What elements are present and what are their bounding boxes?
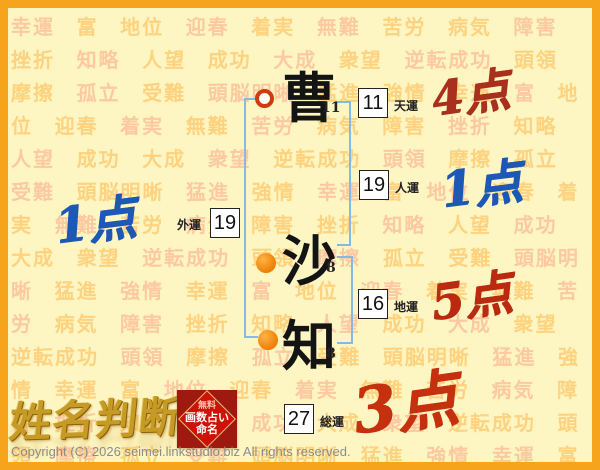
tenun-score: 4点 bbox=[427, 53, 513, 129]
stroke-count-2: 8 bbox=[326, 260, 336, 276]
free-naming-stamp: 無料 画数占い 命名 bbox=[177, 390, 237, 448]
copyright-text: Copyright (C) 2026 seimei.linkstudio.biz… bbox=[11, 444, 351, 459]
stroke-count-1: 11 bbox=[321, 100, 340, 116]
jinun-value-box: 19 bbox=[359, 170, 389, 200]
gaiun-value-box: 19 bbox=[210, 208, 240, 238]
jinun-label: 人運 bbox=[395, 179, 419, 196]
jinun-score: 1点 bbox=[436, 141, 525, 220]
chiun-score: 5点 bbox=[426, 253, 516, 334]
name-char-2: 沙 bbox=[270, 233, 348, 289]
name-char-1: 曹 bbox=[270, 70, 348, 126]
chiun-value-box: 16 bbox=[358, 289, 388, 319]
name-char-3: 知 bbox=[270, 318, 348, 374]
result-canvas: 幸運 富 地位 迎春 着実 無難 苦労 病気 障害 挫折 知略 人望 成功 大成… bbox=[8, 8, 592, 462]
site-logo: 姓名判断 bbox=[8, 383, 185, 450]
fortune-overlay: 曹 11 沙 8 知 8 11 天運 19 人運 外運 19 16 地運 27 … bbox=[8, 8, 592, 462]
soun-score: 3点 bbox=[346, 347, 463, 451]
tenun-label: 天運 bbox=[394, 97, 418, 114]
tenun-value-box: 11 bbox=[358, 88, 388, 118]
stroke-count-3: 8 bbox=[326, 346, 336, 362]
chiun-label: 地運 bbox=[394, 298, 418, 315]
stamp-text: 無料 画数占い 命名 bbox=[177, 390, 237, 448]
stamp-line-1: 無料 bbox=[198, 401, 216, 411]
soun-value-box: 27 bbox=[284, 404, 314, 434]
gaiun-label: 外運 bbox=[177, 216, 201, 233]
page-frame: 幸運 富 地位 迎春 着実 無難 苦労 病気 障害 挫折 知略 人望 成功 大成… bbox=[0, 0, 600, 470]
gaiun-score: 1点 bbox=[50, 177, 139, 256]
stamp-line-3: 命名 bbox=[196, 424, 218, 437]
outer-luck-bracket bbox=[244, 98, 258, 338]
soun-label: 総運 bbox=[320, 413, 344, 430]
